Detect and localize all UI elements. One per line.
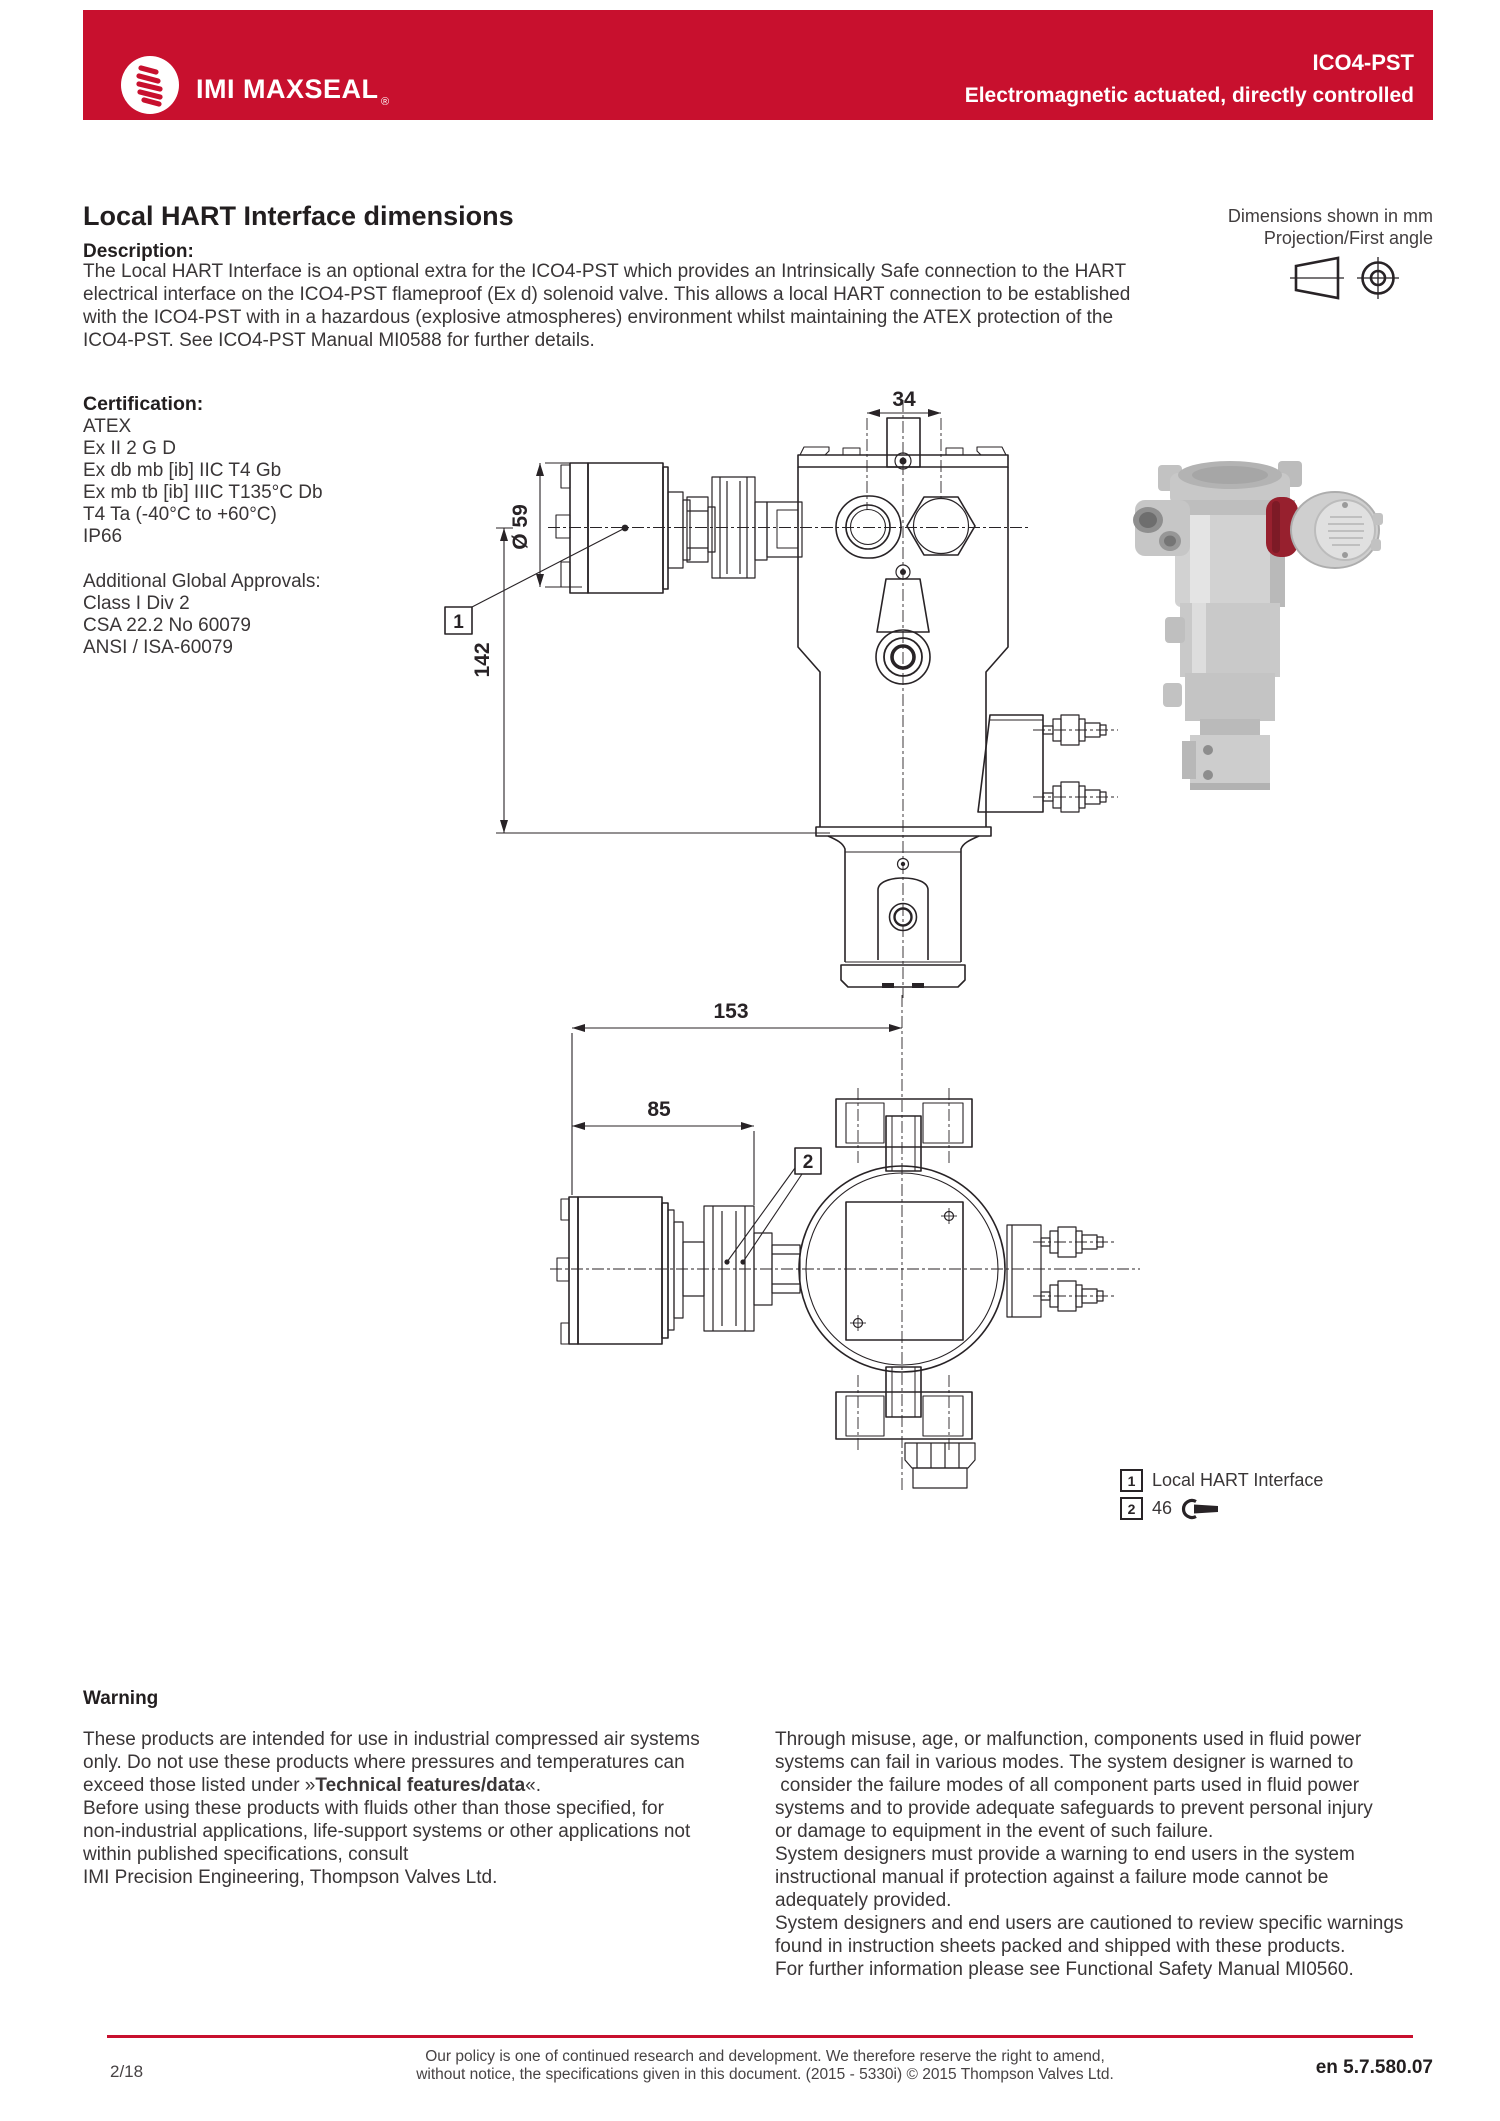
warning-line: non-industrial applications, life-suppor…	[83, 1820, 773, 1843]
approvals-label: Additional Global Approvals:	[83, 571, 321, 593]
legend-box-1: 1	[1120, 1469, 1143, 1492]
bottom-mounting-tab	[836, 1367, 972, 1439]
dimensions-note-line1: Dimensions shown in mm	[950, 205, 1433, 227]
product-title: ICO4-PST	[700, 50, 1414, 76]
hart-interface-top	[557, 1197, 668, 1344]
top-mounting-tab	[836, 1099, 972, 1171]
adapter-top	[668, 1206, 800, 1331]
dim-85: 85	[647, 1098, 671, 1121]
warning-line: For further information please see Funct…	[775, 1958, 1455, 1981]
warning-line: adequately provided.	[775, 1889, 1455, 1912]
certification-line: Ex mb tb [ib] IIIC T135°C Db	[83, 482, 323, 504]
description-line: electrical interface on the ICO4-PST fla…	[83, 283, 1130, 306]
warning-line: systems and to provide adequate safeguar…	[775, 1797, 1455, 1820]
warning-line: systems can fail in various modes. The s…	[775, 1751, 1455, 1774]
warning-line: or damage to equipment in the event of s…	[775, 1820, 1455, 1843]
product-subtitle: Electromagnetic actuated, directly contr…	[500, 84, 1414, 108]
description-line: ICO4-PST. See ICO4-PST Manual MI0588 for…	[83, 329, 1130, 352]
imi-logo-icon	[120, 55, 180, 115]
description-line: The Local HART Interface is an optional …	[83, 260, 1130, 283]
dim-153: 153	[713, 1000, 748, 1023]
warning-line: IMI Precision Engineering, Thompson Valv…	[83, 1866, 773, 1889]
warning-line: Before using these products with fluids …	[83, 1797, 773, 1820]
warning-line: System designers and end users are cauti…	[775, 1912, 1455, 1935]
certification-list: ATEX Ex II 2 G D Ex db mb [ib] IIC T4 Gb…	[83, 416, 323, 548]
page-number: 2/18	[110, 2062, 143, 2082]
certification-label: Certification:	[83, 393, 203, 416]
mounting-bracket-front	[978, 715, 1118, 812]
warning-line: exceed those listed under »Technical fea…	[83, 1774, 773, 1797]
legend-item-2: 2 46	[1120, 1497, 1221, 1520]
footer-policy-line2: without notice, the specifications given…	[300, 2066, 1230, 2084]
legend-item-1: 1 Local HART Interface	[1120, 1469, 1323, 1492]
cable-gland	[905, 1443, 975, 1488]
approvals-line: Class I Div 2	[83, 593, 251, 615]
description-line: with the ICO4-PST with in a hazardous (e…	[83, 306, 1130, 329]
legend-box-2: 2	[1120, 1497, 1143, 1520]
certification-line: ATEX	[83, 416, 323, 438]
approvals-list: Class I Div 2 CSA 22.2 No 60079 ANSI / I…	[83, 593, 251, 659]
warning-line: These products are intended for use in i…	[83, 1728, 773, 1751]
approvals-line: CSA 22.2 No 60079	[83, 615, 251, 637]
certification-line: IP66	[83, 526, 323, 548]
warning-title: Warning	[83, 1688, 158, 1710]
registered-mark: ®	[381, 96, 389, 108]
warning-line: Through misuse, age, or malfunction, com…	[775, 1728, 1455, 1751]
dimensions-note-line2: Projection/First angle	[950, 227, 1433, 249]
legend-label-2: 46	[1152, 1498, 1172, 1519]
wrench-icon	[1181, 1498, 1221, 1520]
warning-line: System designers must provide a warning …	[775, 1843, 1455, 1866]
footer-policy-line1: Our policy is one of continued research …	[300, 2048, 1230, 2066]
right-connector	[1007, 1225, 1103, 1317]
warning-line: only. Do not use these products where pr…	[83, 1751, 773, 1774]
warning-right-column: Through misuse, age, or malfunction, com…	[775, 1728, 1455, 1981]
approvals-line: ANSI / ISA-60079	[83, 637, 251, 659]
dim-34: 34	[892, 388, 916, 411]
hart-interface-front	[556, 463, 668, 593]
front-view-drawing: 34 Ø 59 142 1	[430, 388, 1130, 1003]
warning-line: consider the failure modes of all compon…	[775, 1774, 1455, 1797]
callout-2-label: 2	[803, 1152, 814, 1173]
warning-left-column: These products are intended for use in i…	[83, 1728, 773, 1889]
warning-line: instructional manual if protection again…	[775, 1866, 1455, 1889]
dim-142: 142	[471, 642, 494, 677]
brand-name: IMI MAXSEAL	[196, 74, 379, 105]
certification-line: Ex db mb [ib] IIC T4 Gb	[83, 460, 323, 482]
certification-line: Ex II 2 G D	[83, 438, 323, 460]
callout-1	[445, 525, 628, 634]
dim-dia59: Ø 59	[509, 504, 532, 550]
product-photo	[1130, 445, 1500, 805]
technical-features-ref: Technical features/data	[315, 1775, 525, 1796]
top-view-drawing: 153 85 2	[540, 990, 1150, 1495]
legend-label-1: Local HART Interface	[1152, 1470, 1323, 1491]
warning-line: within published specifications, consult	[83, 1843, 773, 1866]
document-code: en 5.7.580.07	[1133, 2057, 1433, 2079]
dimensions-note: Dimensions shown in mm Projection/First …	[950, 205, 1433, 249]
description-text: The Local HART Interface is an optional …	[83, 260, 1130, 352]
warning-line: found in instruction sheets packed and s…	[775, 1935, 1455, 1958]
datasheet-page: IMI MAXSEAL ® ICO4-PST Electromagnetic a…	[0, 0, 1500, 2121]
first-angle-projection-icon	[1290, 255, 1405, 301]
footer-rule	[107, 2035, 1413, 2038]
page-title: Local HART Interface dimensions	[83, 201, 514, 232]
footer-policy: Our policy is one of continued research …	[300, 2048, 1230, 2084]
certification-line: T4 Ta (-40°C to +60°C)	[83, 504, 323, 526]
callout-1-label: 1	[453, 612, 464, 633]
